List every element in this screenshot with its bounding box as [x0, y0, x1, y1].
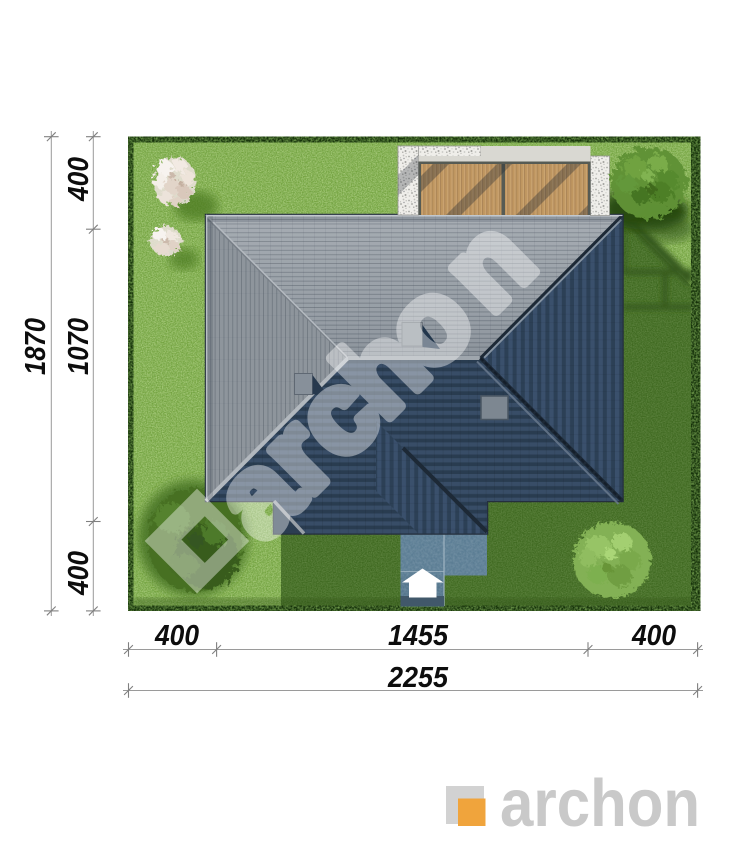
svg-text:400: 400	[154, 620, 199, 652]
svg-text:400: 400	[63, 157, 95, 202]
svg-text:1870: 1870	[20, 318, 52, 375]
svg-text:1070: 1070	[63, 318, 95, 375]
svg-text:2255: 2255	[387, 662, 449, 694]
svg-text:1455: 1455	[388, 620, 449, 652]
svg-text:archon: archon	[500, 766, 700, 841]
svg-text:400: 400	[63, 551, 95, 596]
svg-text:400: 400	[631, 620, 676, 652]
